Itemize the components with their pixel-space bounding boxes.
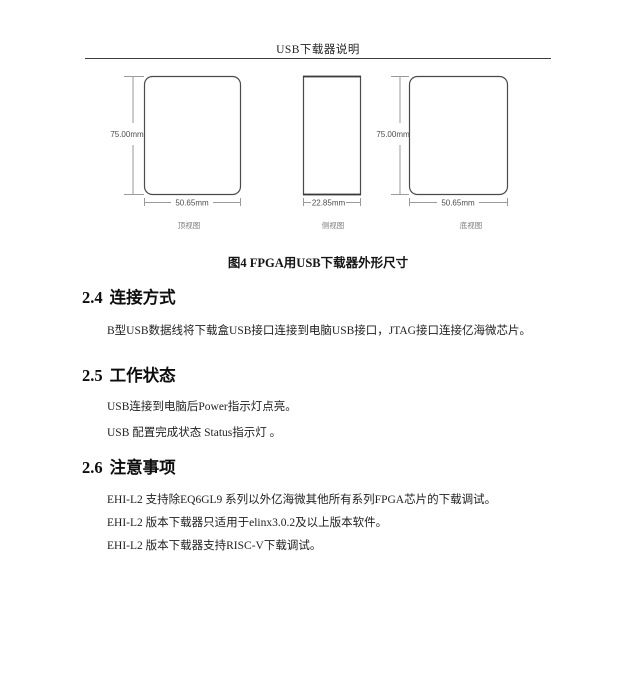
top-view-height-dim: 75.00mm — [110, 130, 144, 139]
dimension-figure: 75.00mm 50.65mm 顶视图 22.85mm 侧视图 — [0, 65, 636, 240]
header-rule — [85, 58, 551, 59]
paragraph: EHI-L2 版本下载器支持RISC-V下载调试。 — [107, 539, 552, 553]
section-body: EHI-L2 支持除EQ6GL9 系列以外亿海微其他所有系列FPGA芯片的下载调… — [82, 493, 552, 553]
side-view-label: 侧视图 — [322, 220, 345, 230]
section-working-status: 2.5工作状态 USB连接到电脑后Power指示灯点亮。 USB 配置完成状态 … — [82, 362, 552, 452]
section-heading: 2.5工作状态 — [82, 362, 552, 386]
section-body: B型USB数据线将下载盒USB接口连接到电脑USB接口，JTAG接口连接亿海微芯… — [82, 324, 552, 338]
page-header-title: USB下载器说明 — [0, 41, 636, 57]
document-page: USB下载器说明 75.00mm 50.65mm 顶视图 — [0, 0, 636, 675]
section-connection-method: 2.4连接方式 B型USB数据线将下载盒USB接口连接到电脑USB接口，JTAG… — [82, 284, 552, 350]
bottom-view-height-dim: 75.00mm — [376, 130, 410, 139]
top-view-label: 顶视图 — [178, 220, 201, 230]
section-title: 工作状态 — [110, 366, 176, 385]
section-number: 2.4 — [82, 288, 103, 307]
figure-caption: 图4 FPGA用USB下载器外形尺寸 — [0, 252, 636, 271]
bottom-view-width-dim: 50.65mm — [441, 199, 475, 208]
section-number: 2.6 — [82, 458, 103, 477]
side-view-diagram: 22.85mm 侧视图 — [303, 77, 361, 231]
top-view-diagram: 75.00mm 50.65mm 顶视图 — [110, 77, 240, 231]
top-view-outline — [145, 77, 241, 195]
paragraph: B型USB数据线将下载盒USB接口连接到电脑USB接口，JTAG接口连接亿海微芯… — [107, 324, 552, 338]
paragraph: USB连接到电脑后Power指示灯点亮。 — [107, 400, 552, 414]
section-body: USB连接到电脑后Power指示灯点亮。 USB 配置完成状态 Status指示… — [82, 400, 552, 440]
section-heading: 2.6注意事项 — [82, 454, 552, 478]
section-title: 连接方式 — [110, 288, 176, 307]
top-view-width-dim: 50.65mm — [175, 199, 209, 208]
bottom-view-outline — [410, 77, 508, 195]
section-number: 2.5 — [82, 366, 103, 385]
bottom-view-diagram: 75.00mm 50.65mm 底视图 — [376, 77, 507, 231]
section-heading: 2.4连接方式 — [82, 284, 552, 308]
section-precautions: 2.6注意事项 EHI-L2 支持除EQ6GL9 系列以外亿海微其他所有系列FP… — [82, 454, 552, 562]
side-view-width-dim: 22.85mm — [312, 199, 346, 208]
paragraph: EHI-L2 版本下载器只适用于elinx3.0.2及以上版本软件。 — [107, 516, 552, 530]
paragraph: EHI-L2 支持除EQ6GL9 系列以外亿海微其他所有系列FPGA芯片的下载调… — [107, 493, 552, 507]
bottom-view-label: 底视图 — [460, 220, 483, 230]
paragraph: USB 配置完成状态 Status指示灯 。 — [107, 426, 552, 440]
side-view-outline — [304, 77, 361, 195]
section-title: 注意事项 — [110, 458, 176, 477]
